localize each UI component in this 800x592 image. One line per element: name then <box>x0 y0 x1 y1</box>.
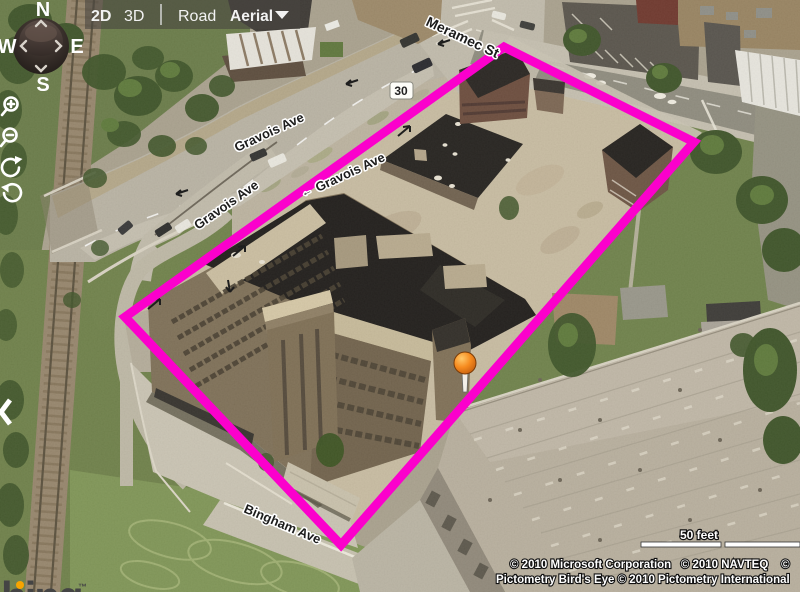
svg-text:™: ™ <box>78 582 87 592</box>
svg-text:© 2010 Microsoft Corporation: © 2010 Microsoft Corporation © 2010 NAVT… <box>510 559 790 571</box>
svg-text:3D: 3D <box>124 8 144 25</box>
svg-text:W: W <box>0 36 17 58</box>
svg-text:N: N <box>36 0 50 21</box>
svg-text:bing: bing <box>1 573 82 592</box>
svg-text:Pictometry Bird's Eye © 2010 P: Pictometry Bird's Eye © 2010 Pictometry … <box>496 574 790 586</box>
svg-text:2D: 2D <box>91 8 111 25</box>
svg-text:30: 30 <box>394 84 408 98</box>
svg-text:Road: Road <box>178 8 216 25</box>
svg-text:50 feet: 50 feet <box>680 528 718 542</box>
svg-text:S: S <box>36 74 49 96</box>
svg-text:E: E <box>70 36 83 58</box>
svg-text:Aerial: Aerial <box>230 8 273 25</box>
